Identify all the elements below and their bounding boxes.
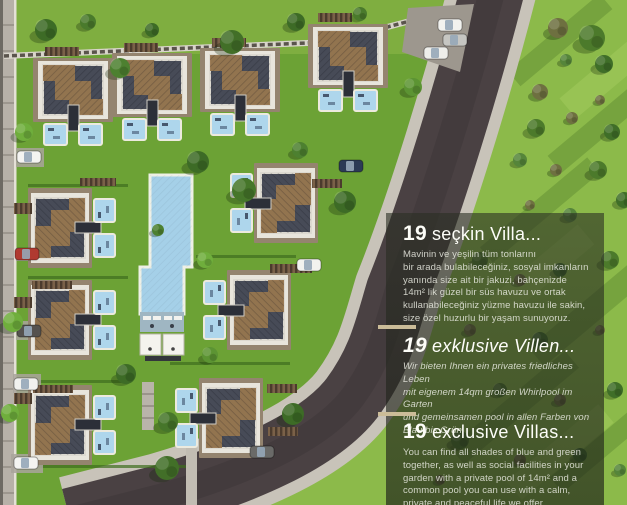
- section-divider: [378, 325, 416, 329]
- info-panel: 19seçkin Villa... Mavinin ve yeşilin tüm…: [386, 213, 604, 505]
- section-title-german: 19exklusive Villen...: [403, 335, 592, 357]
- site-plan-render: 19seçkin Villa... Mavinin ve yeşilin tüm…: [0, 0, 627, 505]
- parked-car: [424, 47, 448, 59]
- section-title-text: exklusive Villen...: [432, 336, 575, 356]
- section-title-text: seçkin Villa...: [432, 224, 541, 244]
- section-title-english: 19exclusive Villas...: [403, 421, 592, 443]
- section-body-english: You can find all shades of blue and gree…: [403, 447, 592, 505]
- left-street: [0, 0, 17, 505]
- villa-count: 19: [403, 420, 427, 443]
- parked-car: [443, 34, 467, 46]
- panel-section-english: 19exclusive Villas... You can find all s…: [403, 421, 592, 505]
- parked-car: [438, 19, 462, 31]
- panel-section-turkish: 19seçkin Villa... Mavinin ve yeşilin tüm…: [403, 223, 592, 326]
- section-body-turkish: Mavinin ve yeşilin tüm tonlarını bir ara…: [403, 249, 592, 326]
- section-title-text: exclusive Villas...: [432, 422, 574, 442]
- section-title-turkish: 19seçkin Villa...: [403, 223, 592, 245]
- villa-count: 19: [403, 334, 427, 357]
- villa-count: 19: [403, 222, 427, 245]
- section-divider: [378, 412, 416, 416]
